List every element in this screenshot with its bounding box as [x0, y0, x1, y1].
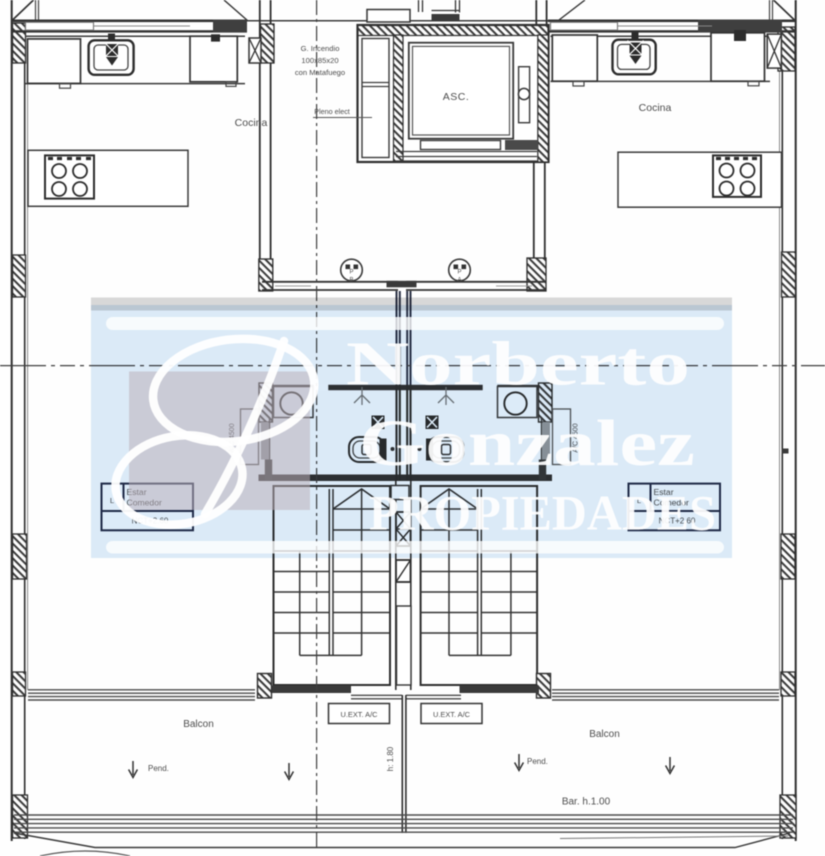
svg-text:G. Incendio: G. Incendio	[301, 44, 340, 53]
svg-text:h: 1.80: h: 1.80	[386, 746, 395, 771]
svg-text:con Matafuego: con Matafuego	[295, 68, 345, 77]
svg-text:Pend.: Pend.	[527, 757, 548, 766]
svg-text:A: A	[457, 278, 461, 284]
svg-text:100x85x20: 100x85x20	[301, 56, 338, 65]
svg-text:Pleno elect: Pleno elect	[314, 107, 350, 116]
svg-text:Cocina: Cocina	[639, 102, 672, 114]
svg-text:P: P	[457, 270, 461, 276]
svg-text:Bar. h.1.00: Bar. h.1.00	[562, 797, 611, 808]
svg-text:U.EXT. A/C: U.EXT. A/C	[341, 710, 379, 719]
svg-text:P: P	[349, 270, 353, 276]
svg-text:PROPIEDADES: PROPIEDADES	[369, 485, 716, 541]
svg-text:Pend.: Pend.	[148, 764, 169, 773]
svg-text:U.EXT. A/C: U.EXT. A/C	[433, 710, 471, 719]
svg-text:Cocina: Cocina	[235, 117, 268, 129]
svg-text:B: B	[349, 278, 353, 284]
svg-text:Norberto: Norberto	[346, 331, 690, 399]
svg-text:Gonzalez: Gonzalez	[359, 407, 695, 480]
svg-text:Balcon: Balcon	[183, 719, 214, 730]
svg-text:ASC.: ASC.	[443, 91, 470, 103]
svg-text:Balcon: Balcon	[589, 729, 620, 740]
